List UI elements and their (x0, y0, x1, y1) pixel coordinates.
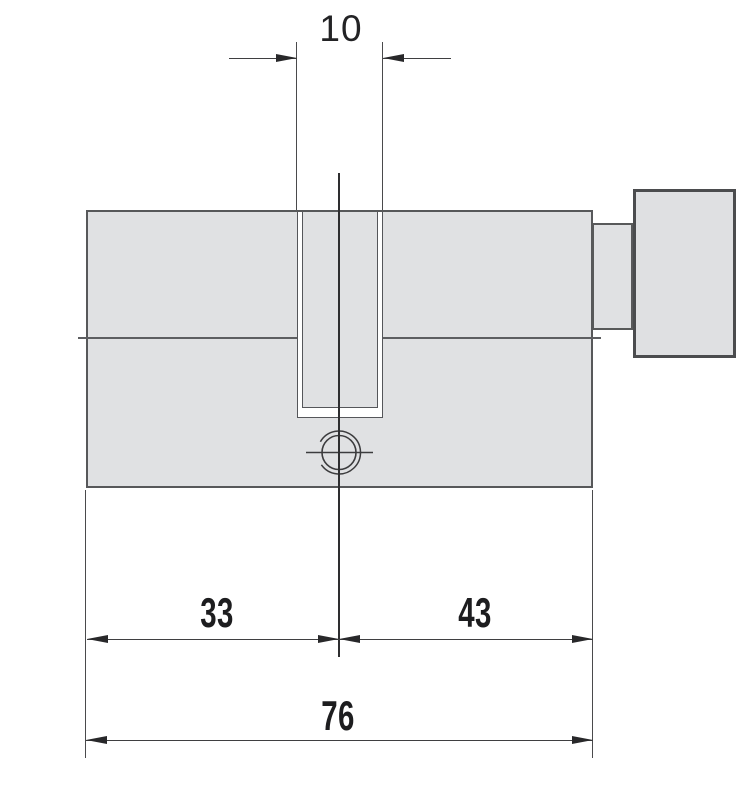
ext-line-keyway-right (382, 42, 383, 210)
dim-43-label: 43 (458, 592, 491, 634)
ext-line-body-right (592, 490, 593, 758)
arrow-43-right-icon (572, 635, 593, 643)
dim-76-label: 76 (321, 695, 354, 737)
arrow-33-left-icon (87, 635, 108, 643)
arrow-10-left-icon (276, 54, 297, 62)
dim-line-33 (87, 639, 339, 640)
ext-line-keyway-left (296, 42, 297, 210)
arrow-43-left-icon (339, 635, 360, 643)
dim-10-label: 10 (319, 10, 362, 47)
vertical-centerline (338, 173, 340, 657)
dim-33-label: 33 (200, 592, 233, 634)
dim-line-43 (339, 639, 593, 640)
thumbturn-neck (592, 223, 633, 330)
dim-line-76 (86, 740, 593, 741)
keyway-slot-inner (302, 212, 378, 408)
technical-drawing-canvas: 10 33 43 76 (0, 0, 756, 795)
arrow-10-right-icon (383, 54, 404, 62)
arrow-33-right-icon (318, 635, 339, 643)
thumbturn-knob (633, 189, 736, 358)
ext-line-body-left (85, 490, 86, 758)
arrow-76-left-icon (86, 736, 107, 744)
arrow-76-right-icon (572, 736, 593, 744)
